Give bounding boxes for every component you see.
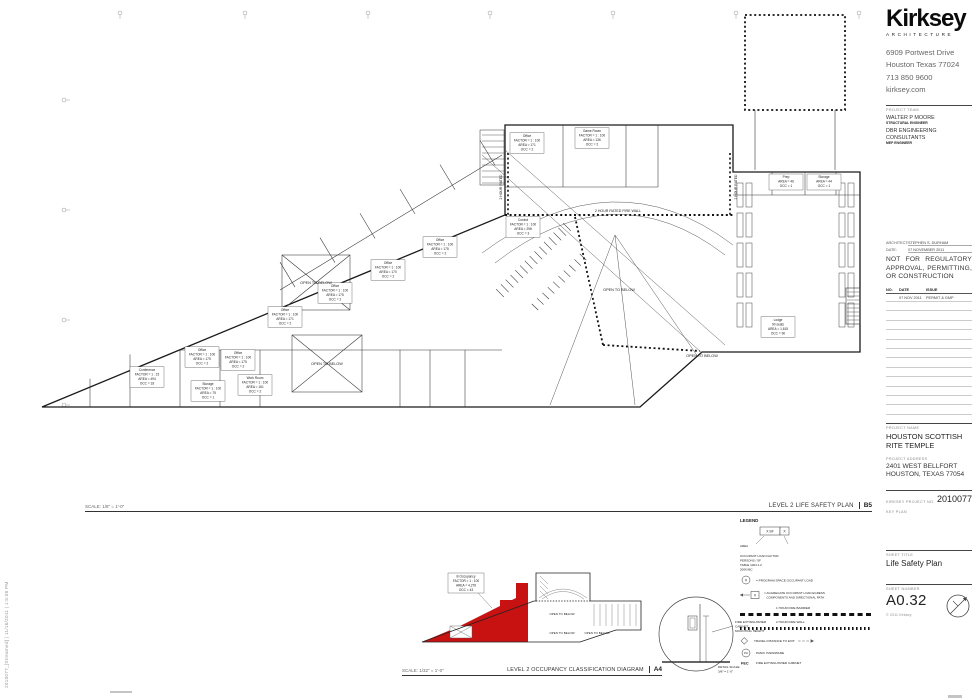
kirksey-logo-subtitle: ARCHITECTURE [886,32,972,37]
grid-ticks [62,11,861,407]
svg-text:PH: PH [744,651,748,655]
svg-text:Conference: Conference [139,368,156,372]
svg-text:PERSONS / SF: PERSONS / SF [740,559,761,563]
svg-text:FACTOR = 1 : 100: FACTOR = 1 : 100 [195,386,221,390]
svg-text:OCC = 2: OCC = 2 [434,251,447,255]
legend-fire-wall: 2 HOUR FIRE WALL [740,620,872,629]
title-block: Kirksey ARCHITECTURE 6909 Portwest Drive… [886,0,972,700]
project-name-label: PROJECT NAME [886,426,972,430]
svg-text:OCC = 1: OCC = 1 [818,184,831,188]
svg-text:Office: Office [523,134,531,138]
level2-life-safety-plan-drawing: 2 HOUR RATED FIRE WALL 2 HOUR RATED 2 HO… [30,5,875,420]
main-plan-title: LEVEL 2 LIFE SAFETY PLAN [769,503,854,509]
svg-text:Prep: Prep [783,175,790,179]
project-number: 2010077 [937,494,972,504]
detail-circle [659,597,733,671]
stamp-date-label: DATE: [886,248,908,253]
project-number-row: KIRKSEY PROJECT NO. 2010077 [886,494,972,504]
svg-text:FACTOR = 1 : 100: FACTOR = 1 : 100 [272,312,298,316]
room-tag: OfficeFACTOR = 1 : 100AREA = 171OCC = 2 [268,307,302,328]
issue-blank-row [886,302,972,311]
svg-text:FACTOR = 1 : 100: FACTOR = 1 : 100 [510,222,536,226]
legend-aggregate-load: # = AGGREGATE OCCUPANT LOAD EGRESS COMPO… [740,591,825,600]
svg-text:3/8" = 1'-0": 3/8" = 1'-0" [718,670,733,674]
svg-text:Control: Control [518,218,529,222]
room-tag: StorageAREA = 44OCC = 1 [807,174,841,190]
svg-text:AREA = 171: AREA = 171 [518,143,536,147]
issue-blank-row [886,311,972,320]
svg-text:AREA = 175: AREA = 175 [193,357,211,361]
issue-blank-row [886,349,972,358]
detail-scale: DETAIL SCALE: 3/8" = 1'-0" [718,665,740,674]
svg-text:OCC = 43: OCC = 43 [459,588,473,592]
svg-text:2 HOUR FIRE WALL: 2 HOUR FIRE WALL [776,620,805,624]
detail-section [662,604,733,662]
svg-text:PANIC HARDWARE: PANIC HARDWARE [756,651,784,655]
svg-text:Office: Office [281,308,289,312]
svg-text:OCC = 2: OCC = 2 [196,361,209,365]
svg-text:OPEN TO BELOW: OPEN TO BELOW [686,354,718,358]
legend-travel-distance: TRAVEL DISTANCE TO EXIT [741,638,814,645]
svg-text:FACTOR = 1 : 100: FACTOR = 1 : 100 [225,355,251,359]
svg-text:OCC = 2: OCC = 2 [232,364,245,368]
svg-text:FACTOR = 1 : 100: FACTOR = 1 : 100 [453,579,479,583]
drawing-sheet: 2010077_[Streamed] | 11/16/2011 | 1:5:08… [0,0,980,700]
svg-text:OCC = 2: OCC = 2 [586,142,599,146]
issue-blank-row [886,368,972,377]
room-tag: StorageFACTOR = 1 : 100AREA = 75OCC = 1 [191,381,225,402]
svg-text:FACTOR = 1 : 100: FACTOR = 1 : 100 [322,288,348,292]
svg-text:Office: Office [198,348,206,352]
sheet-title-label: SHEET TITLE [886,553,972,557]
svg-text:Storage: Storage [202,382,213,386]
svg-text:FIRE EXTINGUISHER CABINET: FIRE EXTINGUISHER CABINET [756,661,801,665]
team-member-role: MEP ENGINEER [886,141,972,145]
legend-program-load: # = PROGRAM SPACE OCCUPANT LOAD [742,576,814,584]
address-line: Houston Texas 77024 [886,59,972,71]
svg-text:COMPONENTS AND DIRECTIONAL PAT: COMPONENTS AND DIRECTIONAL PATH [767,596,825,600]
svg-text:FEC: FEC [741,662,749,666]
room-tag: OfficeFACTOR = 1 : 100AREA = 175OCC = 2 [221,350,255,371]
b-occupancy-tag: B Occupancy FACTOR = 1 : 100 AREA = 4,27… [448,573,492,608]
issue-blank-row [886,330,972,339]
issue-blank-row [886,358,972,367]
key-plan-label: KEY PLAN [886,510,972,514]
svg-text:FACTOR = 1 : 100: FACTOR = 1 : 100 [427,242,453,246]
svg-text:OCCUPANT LOAD FACTOR: OCCUPANT LOAD FACTOR [740,554,779,558]
room-tag: ControlFACTOR = 1 : 100AREA = 298OCC = 3 [506,217,540,238]
team-member-name: DBR ENGINEERING CONSULTANTS [886,128,972,140]
svg-text:AREA = 175: AREA = 175 [326,293,344,297]
team-member-name: WALTER P MOORE [886,115,972,121]
svg-text:OCC = 1: OCC = 1 [202,395,215,399]
main-plan-scale: SCALE: 1/8" = 1'-0" [85,504,124,509]
svg-text:OCC = 2: OCC = 2 [249,389,262,393]
issue-row: 07 NOV 2011 PERMIT & GMP [886,294,972,302]
room-tag: OfficeFACTOR = 1 : 100AREA = 175OCC = 2 [185,347,219,368]
svg-text:#: # [745,578,747,582]
fire-rated-side-label-left: 2 HOUR RATED [499,174,503,200]
lodge-benches [737,183,854,327]
svg-text:AREA = 1,615: AREA = 1,615 [768,327,788,331]
kirksey-logo: Kirksey [886,6,972,32]
firm-address: 6909 Portwest Drive Houston Texas 77024 … [886,47,972,97]
svg-text:Office: Office [436,238,444,242]
project-address-label: PROJECT ADDRESS [886,457,972,461]
svg-text:AREA = 44: AREA = 44 [816,180,832,184]
project-number-label: KIRKSEY PROJECT NO. [886,500,935,504]
svg-text:OCC = 33: OCC = 33 [140,381,154,385]
svg-text:FACTOR = 1 : 100: FACTOR = 1 : 100 [189,352,215,356]
room-tag: Game RoomFACTOR = 1 : 100AREA = 136OCC =… [575,128,609,149]
svg-text:AREA = 46: AREA = 46 [778,180,794,184]
occupancy-diagram-title: LEVEL 2 OCCUPANCY CLASSIFICATION DIAGRAM [507,667,644,673]
main-plan-titlebar: SCALE: 1/8" = 1'-0" LEVEL 2 LIFE SAFETY … [85,502,872,512]
svg-text:FACTOR = 1 : 15: FACTOR = 1 : 15 [135,372,160,376]
svg-text:= AGGREGATE OCCUPANT LOAD EGRE: = AGGREGATE OCCUPANT LOAD EGRESS [764,591,825,595]
fire-wall-label: 2 HOUR RATED FIRE WALL [595,209,641,213]
not-for-construction-notice: NOT FOR REGULATORY APPROVAL, PERMITTING,… [886,256,972,282]
room-tag: OfficeFACTOR = 1 : 100AREA = 170OCC = 2 [371,260,405,281]
legend-fire-barrier: 1 HOUR FIRE BARRIER [740,606,872,615]
main-plan-ref: B5 [859,502,872,509]
open-to-below-labels: OPEN TO BELOW OPEN TO BELOW OPEN TO BELO… [300,281,718,366]
occupancy-diagram-scale: SCALE: 1/32" = 1'-0" [402,668,444,673]
svg-text:FACTOR = 1 : 100: FACTOR = 1 : 100 [514,138,540,142]
svg-text:TRAVEL DISTANCE TO EXIT: TRAVEL DISTANCE TO EXIT [754,639,795,643]
room-tag: ConferenceFACTOR = 1 : 15AREA = 494OCC =… [130,367,164,388]
plan-outline [42,125,860,407]
svg-text:AREA = 175: AREA = 175 [229,360,247,364]
svg-text:OPEN TO BELOW: OPEN TO BELOW [584,631,609,635]
room-tag: OfficeFACTOR = 1 : 100AREA = 171OCC = 2 [510,133,544,154]
project-name: HOUSTON SCOTTISH RITE TEMPLE [886,432,972,450]
svg-text:Office: Office [384,261,392,265]
issue-blank-row [886,321,972,330]
stamp-date: 07 NOVEMBER 2011 [908,248,972,253]
legend-panic-hardware: PH PANIC HARDWARE [742,649,784,657]
address-line: 6909 Portwest Drive [886,47,972,59]
occupancy-diagram-titlebar: SCALE: 1/32" = 1'-0" LEVEL 2 OCCUPANCY C… [402,666,662,676]
legend-fec: FEC FIRE EXTINGUISHER CABINET [741,661,801,665]
svg-text:X SF: X SF [766,530,774,534]
room-tag: Work RoomFACTOR = 1 : 100AREA = 161OCC =… [238,375,272,396]
room-tag: OfficeFACTOR = 1 : 100AREA = 175OCC = 2 [423,237,457,258]
svg-text:#: # [754,593,756,597]
legend-title: LEGEND [740,518,758,523]
mini-open-to-below-labels: OPEN TO BELOW OPEN TO BELOW OPEN TO BELO… [549,612,609,635]
room-tag: OfficeFACTOR = 1 : 100AREA = 175OCC = 2 [318,283,352,304]
svg-text:Lodge: Lodge [774,318,783,322]
svg-text:AREA = 161: AREA = 161 [246,385,264,389]
architect-name: STEPHEN S. DURHAM [908,241,972,246]
svg-text:TABLE 1004.1.2: TABLE 1004.1.2 [740,563,762,567]
room-tag: Lodge90 seatsAREA = 1,615OCC = 90 [761,317,795,338]
svg-text:AREA: AREA [740,544,748,548]
svg-text:OCC = 2: OCC = 2 [329,297,342,301]
issue-blank-row [886,405,972,414]
svg-text:OPEN TO BELOW: OPEN TO BELOW [311,362,343,366]
svg-text:Work Room: Work Room [247,376,264,380]
svg-text:= PROGRAM SPACE OCCUPANT LOAD: = PROGRAM SPACE OCCUPANT LOAD [756,578,814,582]
svg-text:1 HOUR FIRE BARRIER: 1 HOUR FIRE BARRIER [776,606,811,610]
fold-mark-left [110,691,132,693]
svg-text:FACTOR = 1 : 100: FACTOR = 1 : 100 [375,265,401,269]
svg-text:OPEN TO BELOW: OPEN TO BELOW [549,631,574,635]
team-member-role: STRUCTURAL ENGINEER [886,121,972,125]
svg-text:OPEN TO BELOW: OPEN TO BELOW [300,281,332,285]
svg-text:FACTOR = 1 : 100: FACTOR = 1 : 100 [579,133,605,137]
legend-occupant-note: OCCUPANT LOAD FACTOR PERSONS / SF TABLE … [740,554,779,572]
svg-text:Storage: Storage [818,175,829,179]
svg-text:OCC = 90: OCC = 90 [771,331,785,335]
svg-text:AREA = 494: AREA = 494 [138,377,156,381]
issue-blank-row [886,377,972,386]
svg-text:AREA = 298: AREA = 298 [514,227,532,231]
architect-stamp: ARCHITECT: STEPHEN S. DURHAM DATE: 07 NO… [886,241,972,282]
legend: LEGEND X SF X AREA OCCUPANT LOAD FACTOR … [732,516,882,666]
svg-text:OCC = 2: OCC = 2 [521,147,534,151]
issue-blank-row [886,387,972,396]
svg-text:AREA = 75: AREA = 75 [200,391,216,395]
svg-text:90 seats: 90 seats [772,322,784,326]
website-link[interactable]: kirksey.com [886,84,972,96]
svg-text:AREA = 171: AREA = 171 [276,317,294,321]
svg-text:AREA = 136: AREA = 136 [583,138,601,142]
plot-stamp: 2010077_[Streamed] | 11/16/2011 | 1:5:08… [4,478,9,688]
svg-text:Game Room: Game Room [583,129,601,133]
svg-text:Office: Office [234,351,242,355]
sheet-title: Life Safety Plan [886,559,972,568]
svg-text:AREA = 170: AREA = 170 [379,270,397,274]
legend-occupant-tag: X SF X AREA [740,527,789,548]
svg-text:OCC = 1: OCC = 1 [780,184,793,188]
issue-col-no: NO. [886,288,899,292]
room-tag: PrepAREA = 46OCC = 1 [769,174,803,190]
north-arrow-icon [944,592,972,620]
phone: 713 850 9600 [886,72,972,84]
svg-text:OCC = 3: OCC = 3 [517,231,530,235]
issue-col-issue: ISSUE [926,288,972,292]
project-address: 2401 WEST BELLFORT HOUSTON, TEXAS 77054 [886,463,972,480]
occupancy-classification-diagram: B Occupancy FACTOR = 1 : 100 AREA = 4,27… [420,568,665,668]
room-tags: ConferenceFACTOR = 1 : 15AREA = 494OCC =… [130,128,841,402]
svg-text:Office: Office [331,284,339,288]
svg-text:AREA = 175: AREA = 175 [431,247,449,251]
sheet-number-label: SHEET NUMBER [886,587,972,591]
issue-blank-row [886,396,972,405]
svg-text:AREA = 4,276: AREA = 4,276 [456,584,476,588]
svg-text:B Occupancy: B Occupancy [457,575,476,579]
fire-rated-side-label-right: 2 HOUR RATED [734,174,738,200]
issue-blank-rows [886,302,972,415]
svg-text:OCC = 2: OCC = 2 [382,274,395,278]
svg-text:2006 IBC: 2006 IBC [740,568,753,572]
svg-text:FACTOR = 1 : 100: FACTOR = 1 : 100 [242,380,268,384]
svg-text:OPEN TO BELOW: OPEN TO BELOW [603,288,635,292]
issue-col-date: DATE [899,288,926,292]
svg-text:OCC = 2: OCC = 2 [279,321,292,325]
issue-table: NO. DATE ISSUE 07 NOV 2011 PERMIT & GMP [886,288,972,415]
auditorium-lines [482,150,733,405]
svg-text:OPEN TO BELOW: OPEN TO BELOW [549,612,574,616]
fold-mark-right [948,695,962,698]
issue-blank-row [886,340,972,349]
architect-label: ARCHITECT: [886,241,908,246]
project-team-label: PROJECT TEAM [886,108,972,112]
